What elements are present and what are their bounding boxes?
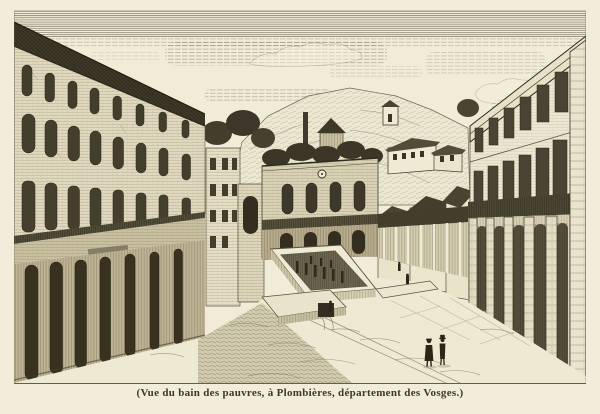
- quoin-corner: [570, 40, 586, 385]
- engraving-plate: [0, 0, 600, 414]
- printed-page: (Vue du bain des pauvres, à Plombières, …: [0, 0, 600, 414]
- central-bath-house: [262, 141, 383, 260]
- caption-text: (Vue du bain des pauvres, à Plombières, …: [136, 387, 463, 399]
- bush: [457, 99, 479, 117]
- tree: [251, 128, 275, 148]
- clock-medallion: [318, 170, 326, 178]
- archway: [238, 184, 264, 302]
- engraving-caption: (Vue du bain des pauvres, à Plombières, …: [0, 387, 600, 399]
